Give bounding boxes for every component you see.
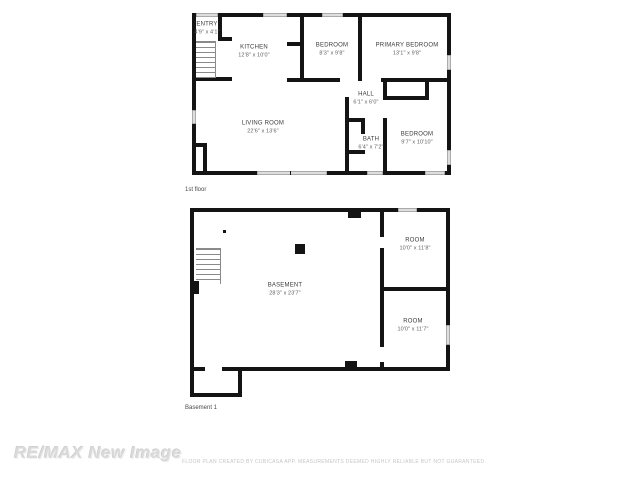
floor-caption-basement: Basement 1: [185, 405, 217, 411]
remax-watermark: RE/MAX New Image: [14, 443, 182, 463]
wall: [238, 371, 242, 397]
room-label-bedroom: BEDROOM 8'3" x 9'8": [316, 42, 348, 59]
wall: [300, 17, 304, 81]
wall: [361, 122, 365, 134]
window: [192, 110, 196, 124]
wall: [383, 118, 387, 171]
window: [263, 13, 287, 17]
room-label-basement-room-2: ROOM 10'0" x 11'7": [397, 318, 428, 335]
wall: [287, 78, 340, 82]
wall: [383, 96, 429, 100]
wall: [218, 37, 232, 41]
wall: [425, 82, 429, 100]
window-mullion: [290, 171, 291, 175]
room-name: ROOM: [397, 318, 428, 327]
window: [196, 13, 218, 17]
floor-plan-page: ENTRY 4'9" x 4'1" KITCHEN 12'8" x 10'0" …: [0, 0, 640, 480]
wall: [203, 143, 207, 171]
wall: [358, 17, 362, 81]
disclaimer-text: FLOOR PLAN CREATED BY CUBICASA APP. MEAS…: [182, 459, 486, 465]
room-name: PRIMARY BEDROOM: [376, 42, 439, 51]
room-dims: 9'7" x 10'10": [401, 139, 433, 147]
room-name: ENTRY: [194, 21, 219, 30]
staircase: [196, 41, 216, 78]
room-dims: 8'3" x 9'8": [316, 50, 348, 58]
room-name: BASEMENT: [268, 282, 303, 291]
room-label-basement-room-1: ROOM 10'0" x 11'8": [399, 237, 430, 254]
wall: [190, 393, 242, 397]
room-label-entry: ENTRY 4'9" x 4'1": [194, 21, 219, 38]
floor-caption-1st: 1st floor: [185, 187, 206, 193]
wall: [190, 367, 450, 371]
room-name: LIVING ROOM: [242, 120, 284, 129]
room-name: BEDROOM: [316, 42, 348, 51]
room-dims: 10'0" x 11'8": [399, 245, 430, 253]
wall: [287, 42, 300, 46]
mark-dot: [223, 230, 226, 233]
chimney: [345, 361, 357, 367]
room-name: KITCHEN: [238, 44, 269, 53]
support-column: [295, 244, 305, 254]
room-dims: 4'9" x 4'1": [194, 29, 219, 37]
room-label-bedroom-2: BEDROOM 9'7" x 10'10": [401, 131, 433, 148]
room-name: ROOM: [399, 237, 430, 246]
room-dims: 12'8" x 10'0": [238, 52, 269, 60]
window: [367, 171, 383, 175]
window: [447, 150, 451, 165]
room-label-bath: BATH 6'4" x 7'2": [358, 136, 383, 153]
wall: [381, 78, 451, 82]
room-dims: 28'3" x 23'7": [268, 290, 303, 298]
room-dims: 10'0" x 11'7": [397, 326, 428, 334]
wall: [380, 212, 384, 237]
room-label-primary-bedroom: PRIMARY BEDROOM 13'1" x 9'8": [376, 42, 439, 59]
window: [446, 325, 450, 345]
wall: [380, 362, 384, 367]
window: [398, 208, 417, 212]
room-dims: 6'4" x 7'2": [358, 144, 383, 152]
wall: [192, 143, 207, 147]
staircase: [196, 248, 221, 284]
chimney: [348, 212, 361, 218]
room-dims: 13'1" x 9'8": [376, 50, 439, 58]
window: [257, 171, 327, 175]
wall: [384, 287, 450, 291]
room-name: BATH: [358, 136, 383, 145]
window: [425, 171, 445, 175]
door-opening: [205, 367, 222, 371]
room-dims: 22'6" x 13'6": [242, 128, 284, 136]
room-dims: 6'1" x 6'0": [353, 99, 378, 107]
room-label-hall: HALL 6'1" x 6'0": [353, 91, 378, 108]
room-label-kitchen: KITCHEN 12'8" x 10'0": [238, 44, 269, 61]
room-label-basement: BASEMENT 28'3" x 23'7": [268, 282, 303, 299]
room-name: HALL: [353, 91, 378, 100]
window: [447, 55, 451, 70]
wall: [380, 248, 384, 347]
room-name: BEDROOM: [401, 131, 433, 140]
wall: [345, 97, 349, 171]
window: [322, 13, 343, 17]
room-label-living-room: LIVING ROOM 22'6" x 13'6": [242, 120, 284, 137]
